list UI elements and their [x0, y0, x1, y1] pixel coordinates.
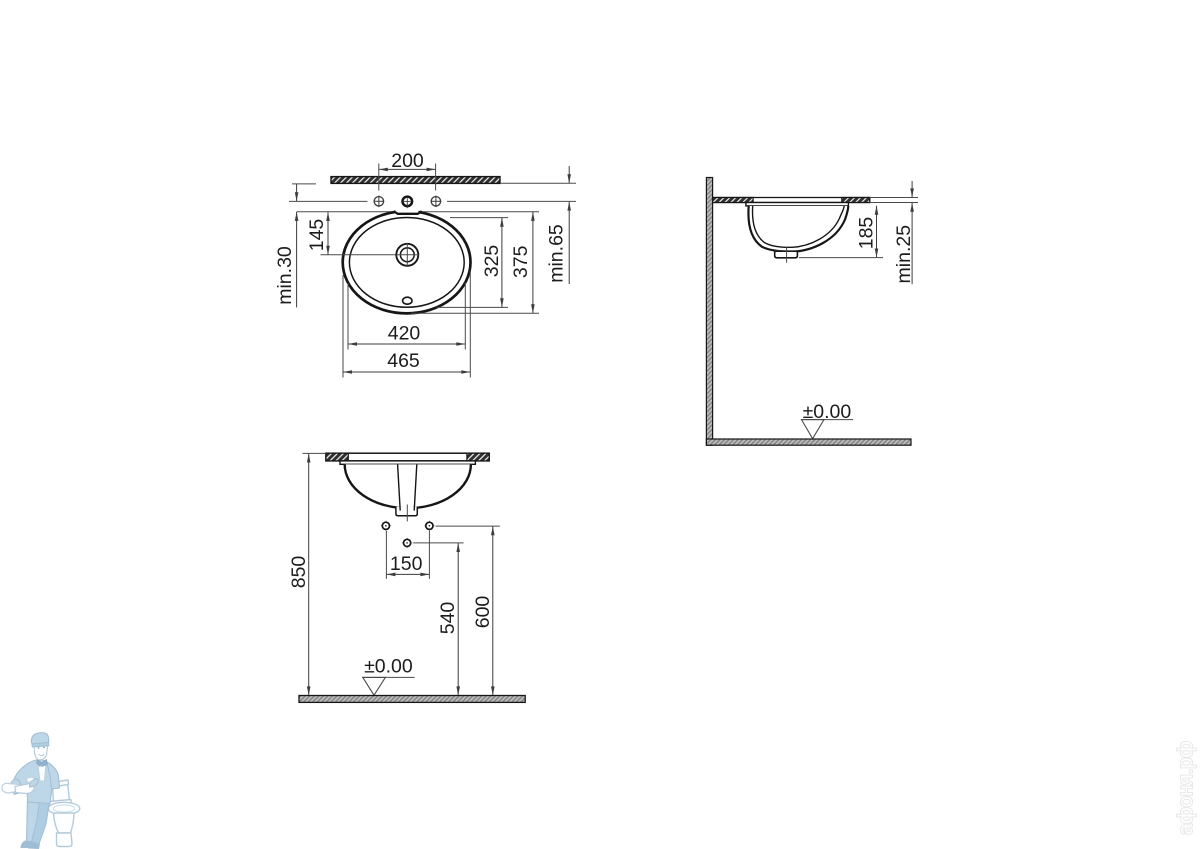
svg-text:min.25: min.25 — [893, 225, 915, 284]
svg-text:±0.00: ±0.00 — [364, 656, 413, 678]
svg-text:150: 150 — [390, 553, 423, 575]
svg-text:200: 200 — [391, 150, 424, 172]
svg-text:540: 540 — [437, 602, 459, 635]
svg-text:600: 600 — [472, 596, 494, 629]
svg-text:185: 185 — [856, 217, 878, 250]
svg-text:афоня.рф: афоня.рф — [1175, 741, 1197, 835]
svg-text:375: 375 — [510, 245, 532, 278]
svg-text:465: 465 — [387, 350, 420, 372]
svg-text:325: 325 — [481, 245, 503, 278]
svg-text:min.65: min.65 — [546, 224, 568, 283]
svg-text:145: 145 — [306, 219, 328, 252]
svg-text:420: 420 — [388, 322, 421, 344]
svg-text:min.30: min.30 — [274, 246, 296, 305]
svg-text:850: 850 — [288, 556, 310, 589]
